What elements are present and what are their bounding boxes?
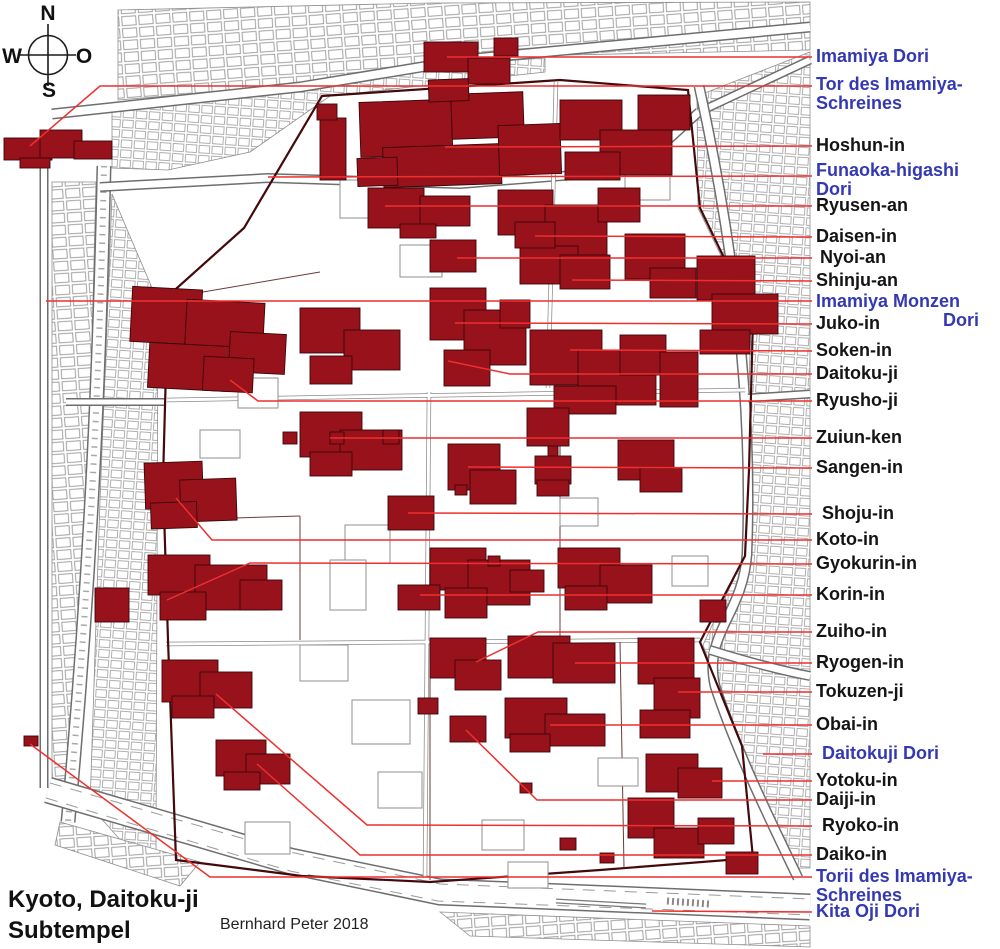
- cluster-obai: [450, 698, 605, 752]
- cluster-soken: [530, 330, 698, 414]
- compass-s-label: S: [42, 79, 56, 102]
- credit-text: Bernhard Peter 2018: [220, 916, 369, 934]
- cluster-daiko: [216, 740, 290, 790]
- cluster-northeast: [560, 95, 690, 180]
- cluster-ryusen: [368, 188, 470, 238]
- cluster-shoju: [388, 496, 434, 530]
- map-canvas: N W O S Imamiya DoriTor des Imamiya-Schr…: [0, 0, 1000, 949]
- title-line-2: Subtempel: [8, 915, 199, 946]
- torii-marker: [24, 736, 38, 746]
- cluster-main-halls: [527, 408, 571, 496]
- cluster-koto: [144, 460, 237, 529]
- compass-rose: N W O S: [2, 2, 92, 102]
- cluster-zuiho: [430, 638, 501, 690]
- compass-n-label: N: [40, 2, 55, 25]
- cluster-korin: [510, 548, 652, 610]
- cluster-tokuzen: [638, 638, 700, 738]
- title-line-1: Kyoto, Daitoku-ji: [8, 884, 199, 915]
- compass-o-label: O: [76, 45, 92, 68]
- cluster-yotoku: [646, 754, 722, 798]
- cluster-ryogen: [508, 636, 615, 683]
- map-artwork: N W O S: [0, 0, 1000, 949]
- cluster-west-560: [148, 555, 282, 620]
- cluster-ryoko: [162, 660, 252, 718]
- cluster-juko: [430, 288, 530, 386]
- compass-w-label: W: [2, 45, 22, 68]
- cluster-east-mid: [625, 234, 696, 298]
- cluster-east-448: [618, 440, 682, 492]
- cluster-strip: [317, 104, 346, 180]
- cluster-imamiya-gate: [4, 130, 112, 168]
- cluster-center-left: [300, 308, 400, 384]
- map-title: Kyoto, Daitoku-ji Subtempel: [8, 884, 199, 946]
